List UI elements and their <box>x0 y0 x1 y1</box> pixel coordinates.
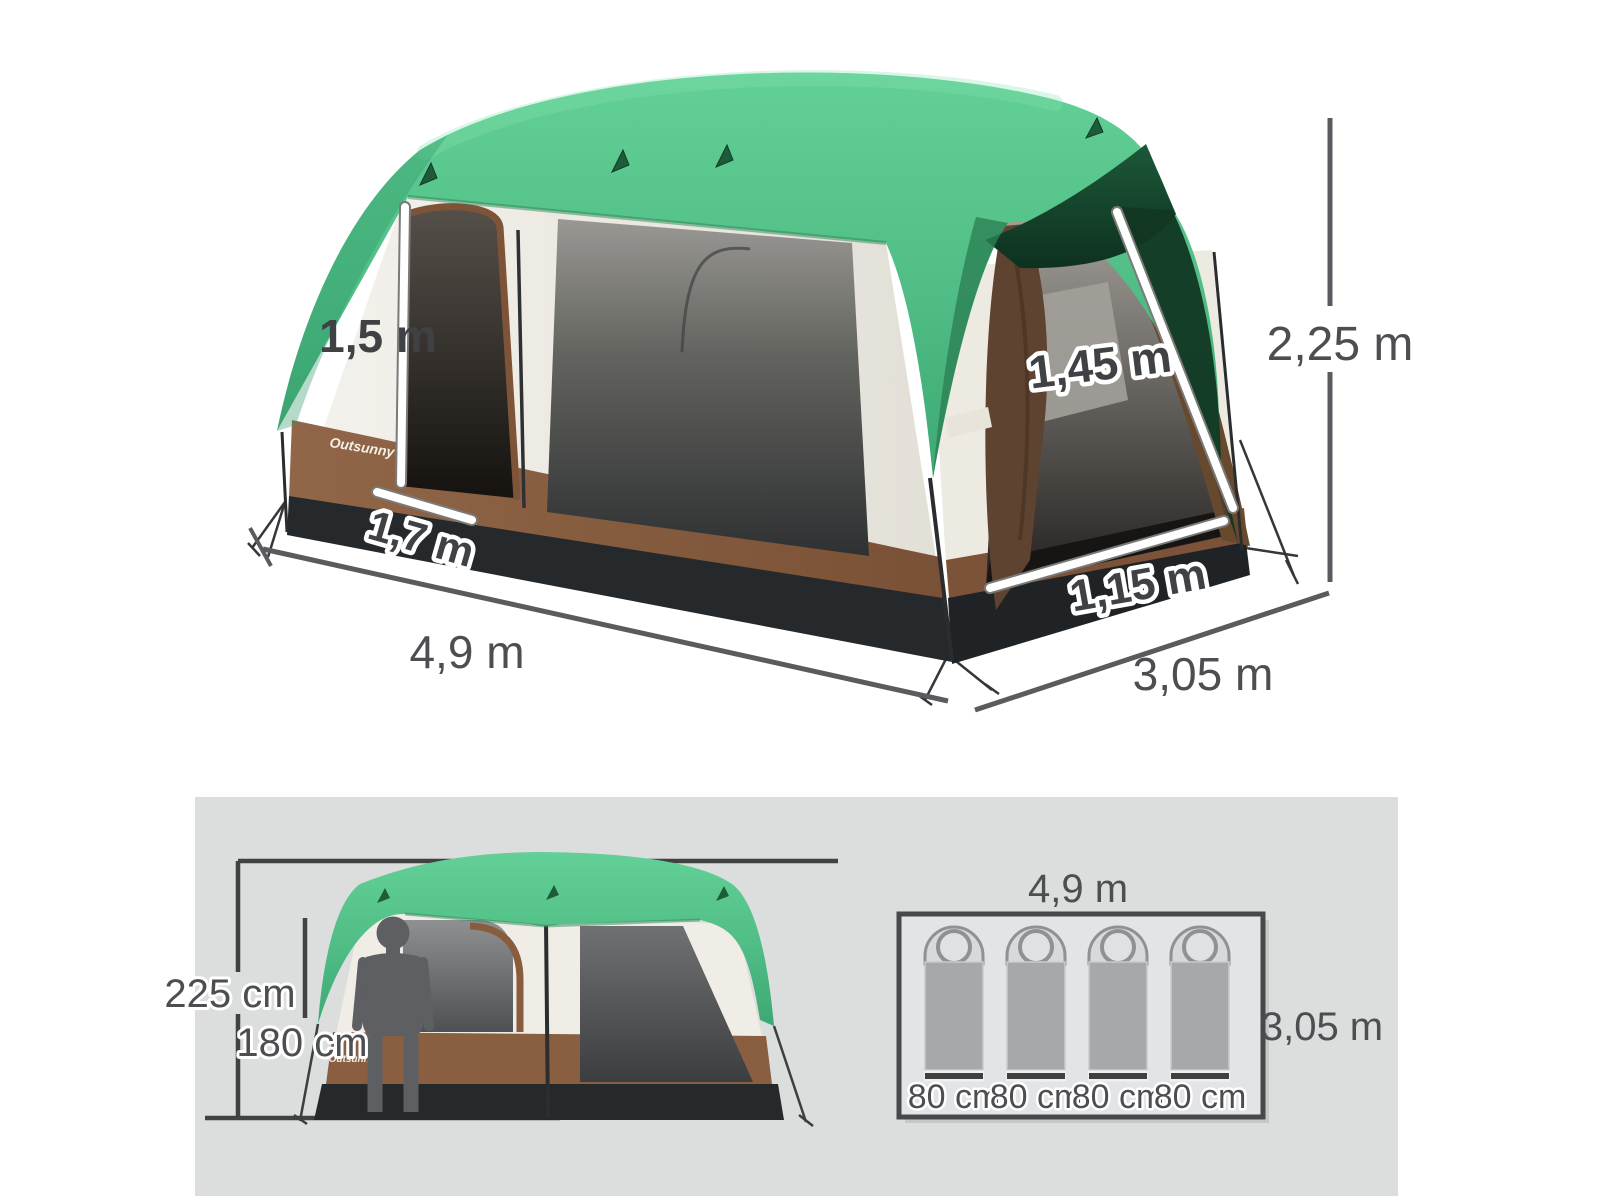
label-height: 2,25 m <box>1267 318 1414 371</box>
side-wall: Outsunny <box>287 197 952 662</box>
left-corner-pole <box>282 432 287 532</box>
bag-width-label: 80 cm <box>990 1078 1083 1116</box>
bag-width-label: 80 cm <box>1154 1078 1247 1116</box>
diagram-canvas: Outsunny <box>0 0 1600 1200</box>
label-length: 4,9 m <box>409 626 524 678</box>
label-person-height: 180 cm <box>236 1021 367 1065</box>
measurement-panel: Outsunny 225 cm 1 <box>164 797 1398 1196</box>
label-left-door-height: 1,5 m <box>319 310 437 362</box>
bag-width-label: 80 cm <box>1072 1078 1165 1116</box>
bag-width-label: 80 cm <box>908 1078 1001 1116</box>
label-depth: 3,05 m <box>1133 648 1274 700</box>
tent-3d-view: Outsunny <box>248 72 1413 710</box>
front-center-pole <box>546 922 548 1118</box>
label-plan-depth: 3,05 m <box>1261 1005 1383 1049</box>
product-dimension-diagram: Outsunny <box>0 0 1600 1200</box>
mesh-window <box>547 219 869 556</box>
label-front-height: 225 cm <box>164 972 295 1016</box>
label-plan-length: 4,9 m <box>1028 867 1128 911</box>
